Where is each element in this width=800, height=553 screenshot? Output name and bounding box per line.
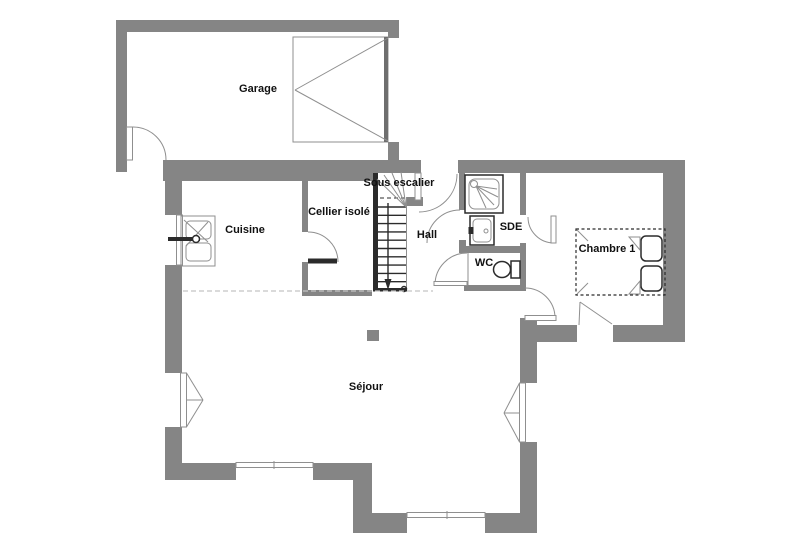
floor-plan: Garage Cuisine Cellier isolé Sous escali…	[0, 0, 800, 553]
wall-sejour-right-upper	[520, 318, 537, 383]
wall-sejour-bottom-lower	[353, 513, 407, 533]
wall-sejour-right-lower	[520, 442, 537, 533]
cellier-door-leaf	[308, 259, 337, 264]
room-label-sde: SDE	[500, 221, 523, 233]
chambre-lower-door-arc	[525, 288, 555, 318]
sejour-right-window-casement-top	[504, 383, 520, 413]
wall-sde-chambre-upper	[520, 173, 526, 215]
wall-sde-left	[459, 173, 465, 210]
room-label-wc: WC	[475, 257, 493, 269]
wall-right-wing-right	[663, 160, 685, 342]
wall-sejour-bottom-left	[165, 463, 236, 480]
walls	[116, 20, 685, 533]
wall-chambre-bottom-right	[613, 325, 673, 342]
sejour-left-window-casement-bottom	[187, 400, 204, 427]
wall-cuisine-left-upper	[165, 170, 182, 215]
garage-door-diagonal-top	[295, 38, 388, 90]
room-label-sous-escalier: Sous escalier	[364, 177, 436, 189]
garage-service-door-leaf	[127, 127, 133, 160]
wc-door-arc	[435, 253, 467, 285]
wall-garage-right-upper	[388, 20, 399, 38]
room-label-garage: Garage	[239, 83, 277, 95]
wall-cuisine-top	[163, 170, 378, 181]
chambre-lower-door-leaf	[525, 316, 556, 321]
wall-stair-left	[373, 173, 378, 291]
sejour-right-window-casement-bottom	[504, 413, 520, 442]
sejour-bottom-window-2	[407, 513, 485, 518]
chambre-upper-door-arc	[528, 217, 554, 243]
sejour-left-window	[181, 373, 187, 427]
structural-post	[367, 330, 379, 341]
wall-cellier-left-upper	[302, 180, 308, 232]
chambre-upper-door-leaf	[551, 216, 556, 243]
washbasin-icon	[469, 216, 495, 245]
room-label-cuisine: Cuisine	[225, 224, 265, 236]
wall-sde-wc-divider	[459, 246, 526, 253]
shower-icon	[465, 175, 503, 213]
garage-door-diagonal-bottom	[295, 90, 388, 141]
kitchen-sink-icon	[168, 216, 215, 266]
wall-right-wing-top	[458, 160, 685, 173]
chambre-french-door-leaf	[579, 302, 580, 325]
wc-door-leaf	[434, 282, 467, 286]
room-label-sejour: Séjour	[349, 381, 384, 393]
chambre-french-door-swing	[580, 302, 612, 324]
cellier-door-arc	[308, 232, 338, 262]
wall-wc-bottom	[464, 285, 526, 291]
room-labels: Garage Cuisine Cellier isolé Sous escali…	[225, 83, 635, 393]
room-label-cellier: Cellier isolé	[308, 206, 370, 218]
toilet-icon	[494, 261, 521, 278]
wall-garage-right-lower	[388, 142, 399, 163]
garage-service-door-arc	[133, 127, 166, 160]
garage-door-icon	[293, 37, 388, 142]
staircase	[373, 172, 407, 292]
wall-left-middle	[165, 265, 182, 373]
wall-sde-left-jamb	[459, 240, 466, 253]
room-label-chambre1: Chambre 1	[579, 243, 636, 255]
garage-door-panel	[384, 37, 388, 142]
stair-treads	[378, 207, 406, 282]
bed-icon	[576, 229, 665, 295]
sejour-right-window	[520, 383, 526, 442]
garage-door-outline	[293, 37, 388, 142]
room-label-hall: Hall	[417, 229, 437, 241]
wall-garage-left	[116, 20, 127, 172]
floor-plan-canvas: Garage Cuisine Cellier isolé Sous escali…	[0, 0, 800, 553]
wall-garage-top	[116, 20, 399, 32]
sejour-left-window-casement-top	[187, 373, 204, 400]
